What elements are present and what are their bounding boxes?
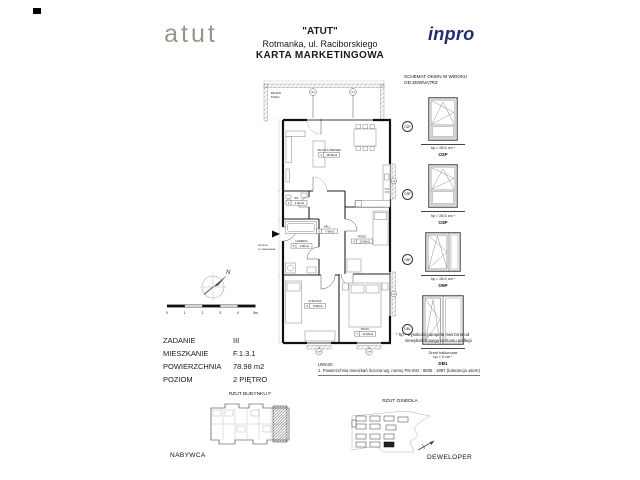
window-code: O3P bbox=[438, 220, 447, 225]
svg-text:4.90m2: 4.90m2 bbox=[300, 244, 310, 248]
window-sill-height: hp = 28.5 cm * bbox=[431, 277, 456, 281]
scale-tick: 2 bbox=[201, 311, 203, 315]
row-value: F.1.3.1 bbox=[233, 347, 298, 360]
svg-text:O3P: O3P bbox=[317, 352, 322, 354]
window-sill-height: hp = 28.5 cm * bbox=[431, 214, 456, 218]
svg-text:O3P: O3P bbox=[392, 181, 397, 183]
window-callout-right-1: O3P bbox=[391, 178, 397, 184]
window-callout-right-2: O5P bbox=[391, 291, 397, 297]
window-callout-balcony-window: O2P bbox=[350, 89, 357, 118]
svg-text:O5P: O5P bbox=[367, 352, 372, 354]
scale-tick: 5m bbox=[253, 311, 258, 315]
svg-text:POKÓJ: POKÓJ bbox=[361, 328, 370, 331]
row-value: III bbox=[233, 334, 298, 347]
table-row: POZIOM 2 PIĘTRO bbox=[163, 373, 298, 386]
svg-text:HALL: HALL bbox=[324, 226, 331, 229]
row-label: POWIERZCHNIA bbox=[163, 360, 233, 373]
room-label-hall: HALL 3 7.96m2 bbox=[317, 226, 338, 234]
window-drawing bbox=[428, 164, 458, 208]
row-label: ZADANIE bbox=[163, 334, 233, 347]
room-label-pokoj-7: POKÓJ 7 14.00m2 bbox=[355, 328, 376, 336]
balcony-label: BALKON bbox=[271, 92, 281, 95]
svg-text:WC: WC bbox=[294, 197, 298, 200]
window-drawing bbox=[428, 97, 458, 141]
window-code: O2P bbox=[438, 152, 447, 157]
window-code: O5P bbox=[438, 283, 447, 288]
svg-text:O5P: O5P bbox=[392, 294, 397, 296]
atut-logo: atut bbox=[143, 20, 239, 49]
dimension-line-left bbox=[278, 119, 280, 344]
window-diagram-o3p: O3P hp = 28.5 cm * O3P bbox=[404, 164, 482, 225]
north-label: N bbox=[226, 270, 231, 276]
window-sill-height: hp = 28.5 cm * bbox=[431, 146, 456, 150]
svg-text:POKÓJ: POKÓJ bbox=[358, 236, 367, 239]
room-label-salon: SALON Z ANEKSEM 1 28.06m2 bbox=[317, 149, 340, 157]
uwagi-note: UWAGI: 1. Powierzchnia mieszkań liczona … bbox=[318, 362, 543, 376]
highlighted-building bbox=[384, 442, 394, 447]
row-value: 78.98 m2 bbox=[233, 360, 298, 373]
entrance-arrow-icon bbox=[272, 231, 280, 238]
window-diagram-o5p: O5P hp = 28.5 cm * O5P bbox=[404, 232, 482, 289]
document-type: KARTA MARKETINGOWA bbox=[230, 50, 410, 63]
svg-text:12.80m2: 12.80m2 bbox=[359, 240, 370, 244]
window-callout-icon: O5P bbox=[402, 254, 413, 265]
scale-tick: 1 bbox=[184, 311, 186, 315]
room-label-pokoj-4: POKÓJ 4 12.80m2 bbox=[352, 236, 373, 244]
windows-schematic-panel: SCHEMAT OKIEN W WIDOKU OD ZEWNĄTRZ O2P h… bbox=[404, 74, 484, 366]
highlighted-apartment bbox=[273, 406, 287, 442]
row-value: 2 PIĘTRO bbox=[233, 373, 298, 386]
scale-tick: 0 bbox=[166, 311, 168, 315]
window-callout-icon: O3P bbox=[402, 189, 413, 200]
site-plan-title: RZUT OSIEDLA bbox=[352, 399, 448, 404]
room-label-lazienka: ŁAZIENKA 5 4.90m2 bbox=[291, 240, 312, 248]
svg-text:SYPIALNIA: SYPIALNIA bbox=[309, 300, 322, 303]
buyer-label: NABYWCA bbox=[170, 452, 206, 459]
row-label: MIESZKANIE bbox=[163, 347, 233, 360]
entrance-label-1: WEJŚCIE bbox=[258, 244, 268, 247]
apartment-floor-plan: BALKON 8.53m2 DB1 O2P WEJŚCIE DO MIESZKA… bbox=[257, 79, 397, 357]
scale-tick: 3 bbox=[219, 311, 221, 315]
table-row: ZADANIE III bbox=[163, 334, 298, 347]
row-label: POZIOM bbox=[163, 373, 233, 386]
project-title: "ATUT" bbox=[230, 26, 410, 39]
window-diagram-o2p: O2P hp = 28.5 cm * O2P bbox=[404, 97, 482, 158]
window-diagram-db1: DB1 Drzwi balkonowe hp = 0 cm * DB1 bbox=[404, 295, 482, 366]
building-plan-title: RZUT BUDYNKU F bbox=[205, 392, 295, 397]
window-callout-balcony-door: DB1 bbox=[310, 89, 317, 118]
header-title-block: "ATUT" Rotmanka, ul. Raciborskiego KARTA… bbox=[230, 26, 410, 62]
site-plan bbox=[350, 408, 446, 456]
compass-icon: N bbox=[196, 266, 236, 306]
balcony-railing bbox=[264, 84, 384, 121]
project-address: Rotmanka, ul. Raciborskiego bbox=[230, 39, 410, 50]
svg-text:2.30m2: 2.30m2 bbox=[295, 201, 305, 205]
svg-text:O2P: O2P bbox=[351, 92, 356, 94]
table-row: POWIERZCHNIA 78.98 m2 bbox=[163, 360, 298, 373]
windows-panel-title: SCHEMAT OKIEN W WIDOKU OD ZEWNĄTRZ bbox=[404, 74, 484, 87]
site-north-arrow-icon bbox=[418, 441, 434, 450]
door-sill-height: hp = 0 cm * bbox=[433, 355, 452, 359]
developer-label: DEWELOPER bbox=[427, 454, 472, 461]
scale-tick: 4 bbox=[237, 311, 239, 315]
svg-text:28.06m2: 28.06m2 bbox=[326, 153, 337, 157]
apartment-info-table: ZADANIE III MIESZKANIE F.1.3.1 POWIERZCH… bbox=[163, 334, 298, 386]
svg-text:7.96m2: 7.96m2 bbox=[325, 230, 335, 234]
print-mark bbox=[33, 8, 41, 14]
scale-bar: 0 1 2 3 4 5m bbox=[163, 303, 263, 317]
table-row: MIESZKANIE F.1.3.1 bbox=[163, 347, 298, 360]
window-drawing bbox=[425, 232, 461, 272]
entrance-label-2: DO MIESZKANIA bbox=[258, 248, 276, 251]
svg-text:8.96m2: 8.96m2 bbox=[313, 304, 323, 308]
building-plan bbox=[205, 400, 295, 448]
balcony-area: 8.53m2 bbox=[271, 96, 280, 99]
window-callout-icon: O2P bbox=[402, 121, 413, 132]
svg-text:ŁAZIENKA: ŁAZIENKA bbox=[295, 240, 307, 243]
marketing-card: { "colors": {"inpro_navy": "#1e2d7b", "a… bbox=[0, 0, 640, 480]
svg-text:SALON Z ANEKSEM: SALON Z ANEKSEM bbox=[317, 149, 340, 152]
dimension-line-top bbox=[264, 80, 384, 83]
inpro-logo: inpro bbox=[428, 24, 475, 45]
sill-footnote: * hp - wysokość parapetu mierzona od nie… bbox=[396, 332, 511, 344]
svg-text:14.00m2: 14.00m2 bbox=[362, 332, 373, 336]
uwagi-text: 1. Powierzchnia mieszkań liczona wg. nor… bbox=[318, 368, 480, 376]
room-label-sypialnia: SYPIALNIA 6 8.96m2 bbox=[305, 300, 326, 308]
